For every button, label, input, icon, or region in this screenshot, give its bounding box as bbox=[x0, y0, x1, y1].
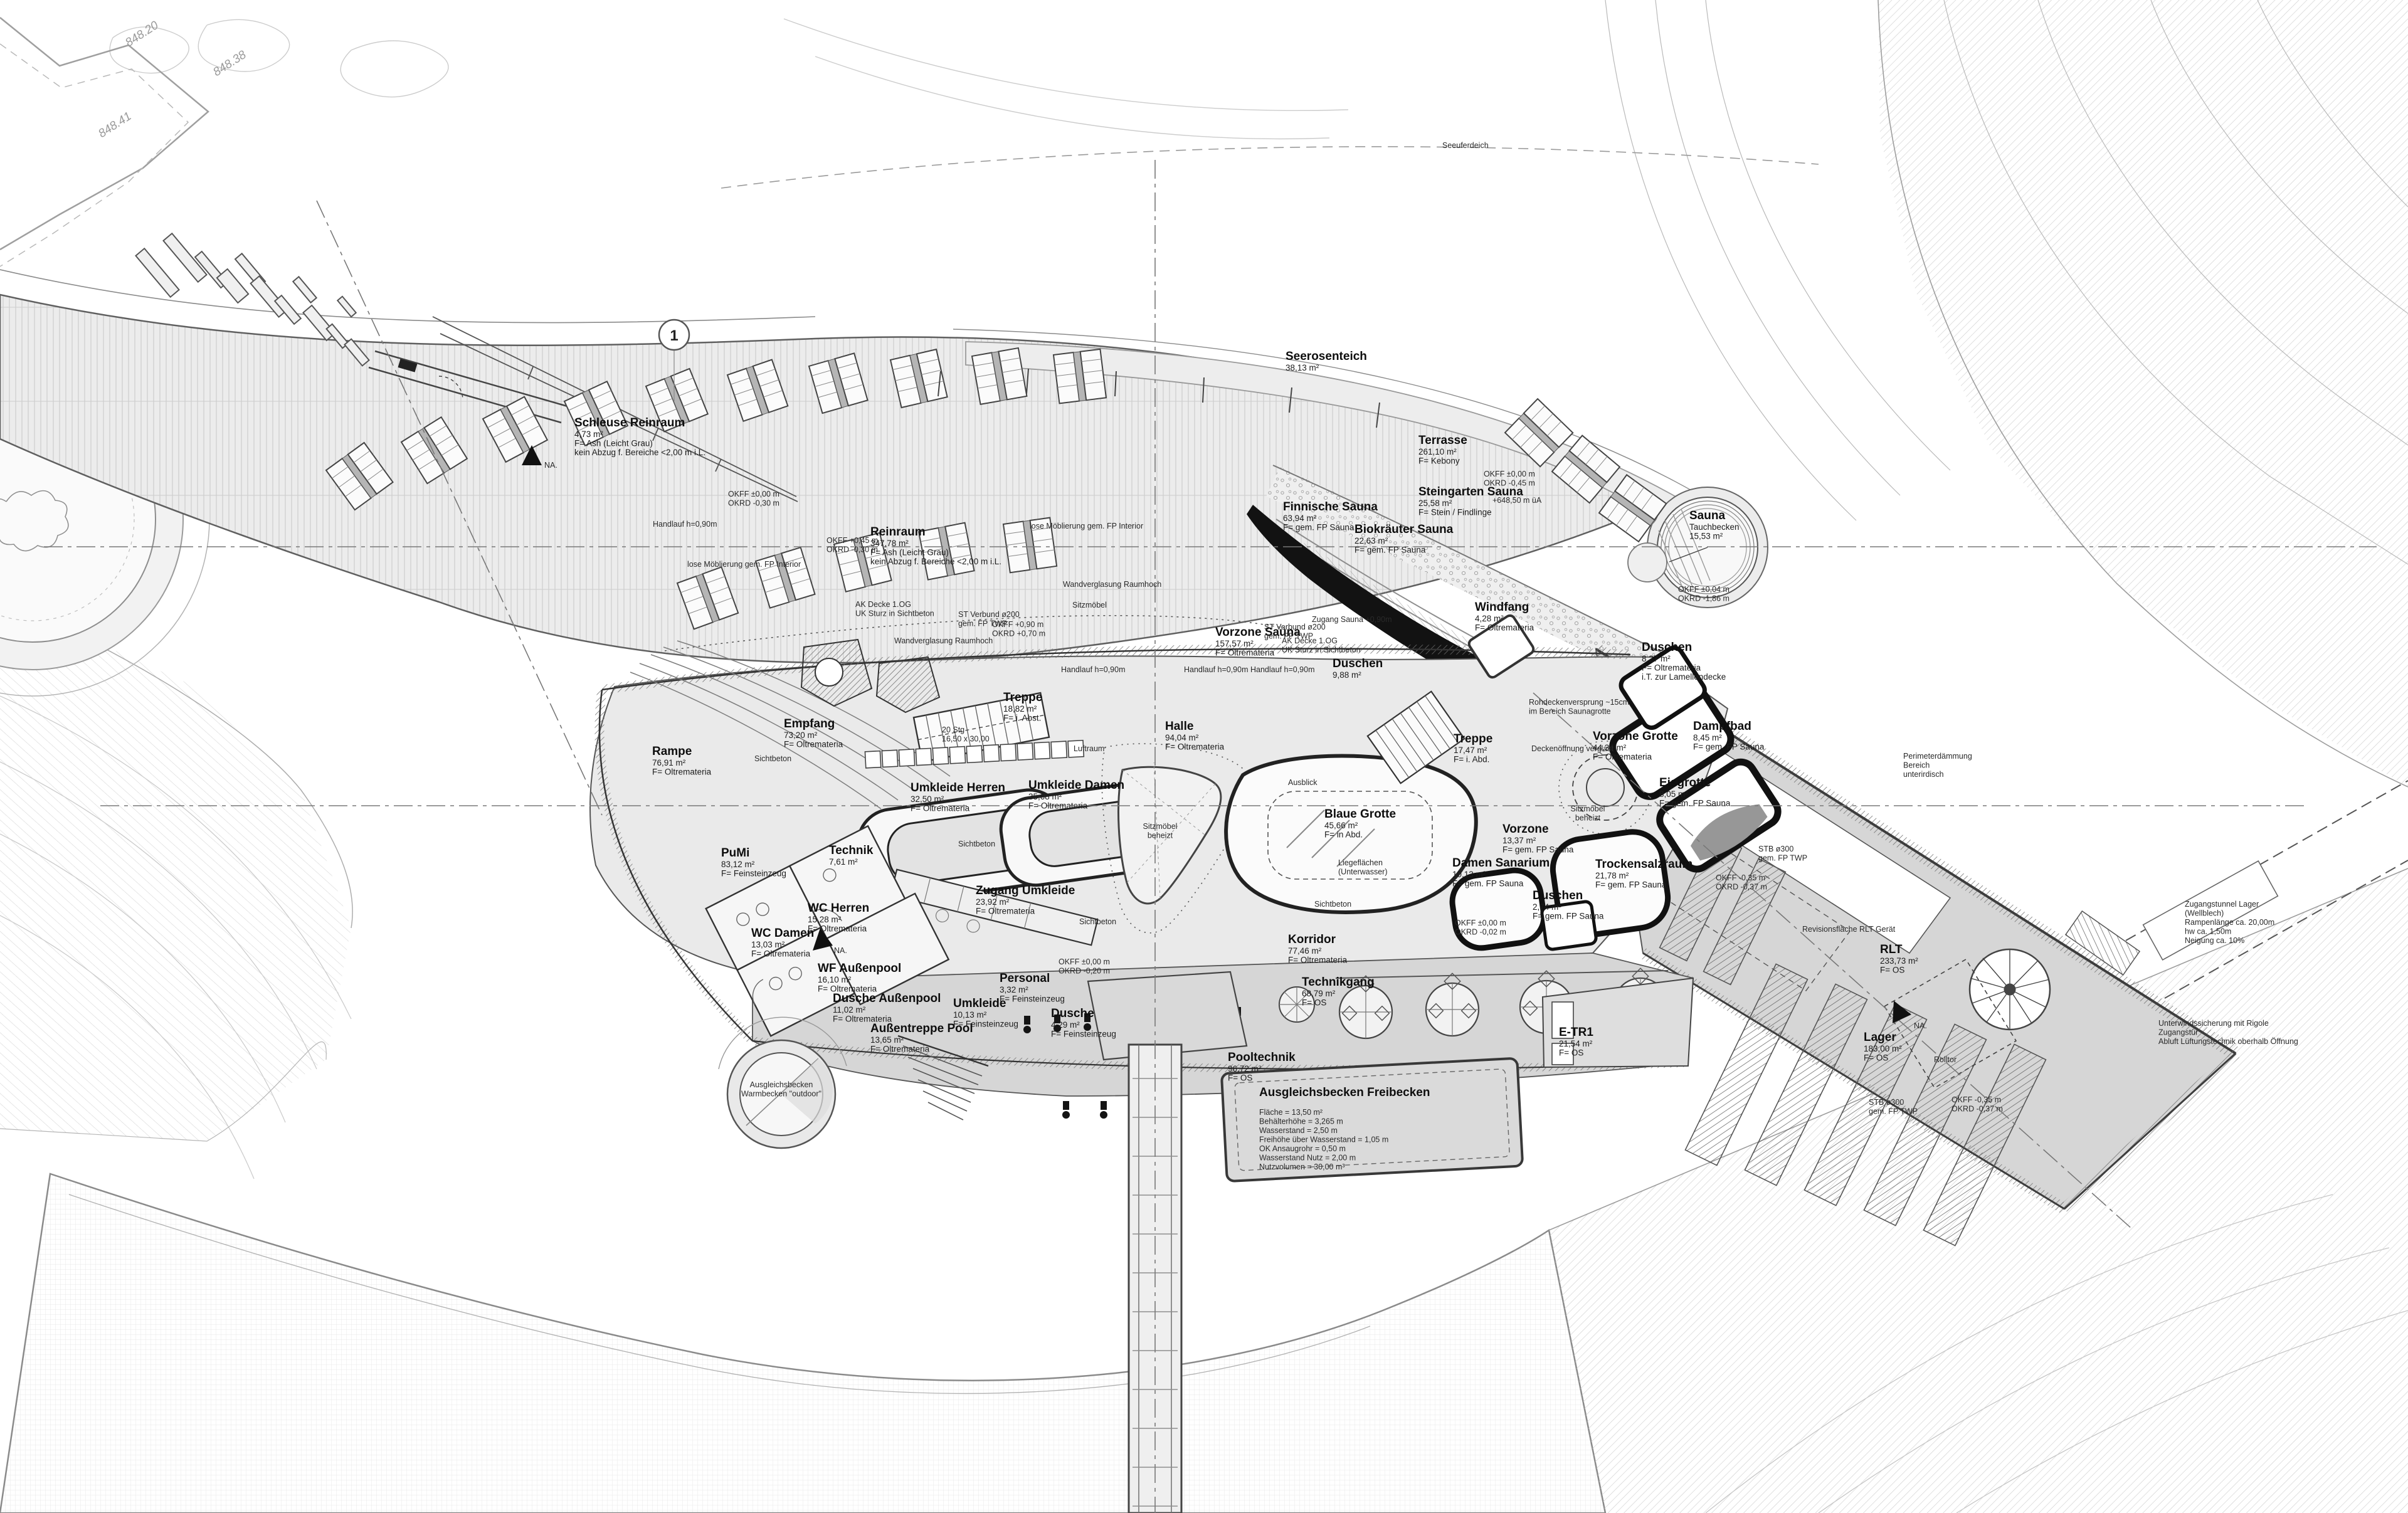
note-handlauf-4: Handlauf h=0,90m bbox=[1250, 665, 1315, 674]
shore-boundary-line bbox=[721, 147, 1819, 188]
label-treppe-grotte: Treppe17,47 m²F= i. Abd. bbox=[1454, 732, 1492, 764]
label-sitzmoebel-terrasse: Sitzmöbel bbox=[1072, 601, 1107, 609]
mark-okff-2: OKFF ±0,00 mOKRD -0,30 m bbox=[728, 490, 779, 508]
note-sichtbeton-2: Sichtbeton bbox=[958, 840, 995, 848]
architectural-site-plan: 1 848.20848.38848.41SeeuferdeichSeerosen… bbox=[0, 0, 2408, 1513]
note-sichtbeton-3: Sichtbeton bbox=[1079, 917, 1116, 926]
label-treppe-halle: Treppe18,82 m²F= i. Abst. bbox=[1003, 691, 1042, 723]
mark-okff-6: OKFF -0,35 mOKRD -0,37 m bbox=[1951, 1095, 2003, 1114]
label-sitzmoebel-halle: Sitzmöbelbeheizt bbox=[1143, 822, 1178, 840]
label-liegeflaechen: Liegeflächen(Unterwasser) bbox=[1338, 858, 1388, 877]
note-handlauf-2: Handlauf h=0,90m bbox=[1061, 665, 1126, 674]
note-wandverglasung-2: Wandverglasung Raumhoch bbox=[894, 636, 993, 645]
label-warmbecken-outdoor: AusgleichsbeckenWarmbecken "outdoor" bbox=[741, 1080, 821, 1099]
spiral-stair bbox=[1970, 949, 2050, 1030]
axis-marker-1: 1 bbox=[670, 327, 678, 344]
note-ak-decke-2: AK Decke 1.OGUK Sturz in Sichtbeton bbox=[1282, 636, 1361, 655]
slope-hatch-topright bbox=[1878, 0, 2408, 787]
note-moeblierung-2: lose Möblierung gem. FP Interior bbox=[1030, 522, 1143, 530]
note-deckenoeffnung: Deckenöffnung verglast bbox=[1531, 744, 1614, 753]
label-sitzmoebel-grotte: Sitzmöbelbeheizt bbox=[1571, 804, 1605, 823]
mark-okff-5: OKFF -0,35 mOKRD -0,37 m bbox=[1716, 873, 1767, 892]
mark-hoehe-648: +648,50 m üA bbox=[1492, 496, 1542, 505]
note-sichtbeton-4: Sichtbeton bbox=[1314, 900, 1351, 909]
note-perimeterdaemmung: PerimeterdämmungBereichunterirdisch bbox=[1903, 752, 1972, 779]
mark-okff-7: OKFF ±0,00 mOKRD -0,20 m bbox=[1059, 957, 1110, 976]
label-seeuferdeich: Seeuferdeich bbox=[1442, 141, 1489, 150]
mark-okff-tauchbecken: OKFF ±0,04 mOKRD -1,86 m bbox=[1678, 585, 1729, 603]
mark-na-3: NA. bbox=[1914, 1021, 1927, 1030]
label-ausblick: Ausblick bbox=[1288, 778, 1318, 787]
note-handlauf-3: Handlauf h=0,90m bbox=[1184, 665, 1249, 674]
mark-okff-4: OKFF ±0,00 mOKRD -0,45 m bbox=[1484, 470, 1535, 488]
contour-elevation-848-38: 848.38 bbox=[211, 48, 249, 79]
mark-na-1: NA. bbox=[544, 461, 557, 470]
lake-freibecken bbox=[0, 1174, 1605, 1513]
mark-okff-1: OKFF +0,45 mOKRD -0,30 m bbox=[826, 536, 878, 554]
contour-elevation-848-41: 848.41 bbox=[96, 110, 134, 140]
mark-okff-8: OKFF ±0,00 mOKRD -0,02 m bbox=[1455, 919, 1506, 937]
contour-elevation-848-20: 848.20 bbox=[123, 19, 161, 50]
access-road bbox=[0, 18, 208, 266]
label-seerosenteich: Seerosenteich38,13 m² bbox=[1286, 350, 1367, 372]
label-rolltor: Rolltor bbox=[1934, 1055, 1956, 1064]
note-revisionsflaeche: Revisionsfläche RLT Gerät bbox=[1802, 925, 1896, 934]
lake-strip-left bbox=[0, 599, 352, 1141]
note-moeblierung-1: lose Möblierung gem. FP Interior bbox=[687, 560, 801, 569]
mark-na-2: NA. bbox=[834, 946, 847, 955]
terrain-contours-topleft bbox=[110, 19, 1348, 139]
note-handlauf-1: Handlauf h=0,90m bbox=[653, 520, 717, 529]
site-plan-page: 1 848.20848.38848.41SeeuferdeichSeerosen… bbox=[0, 0, 2408, 1513]
note-wandverglasung-1: Wandverglasung Raumhoch bbox=[1063, 580, 1161, 589]
mark-okff-3: OKFF +0,90 mOKRD +0,70 m bbox=[992, 620, 1045, 638]
label-ausgleichsbecken-freibecken: Ausgleichsbecken Freibecken bbox=[1259, 1086, 1430, 1099]
note-sichtbeton-1: Sichtbeton bbox=[754, 754, 791, 763]
label-luftraum: Luftraum bbox=[1074, 744, 1104, 753]
